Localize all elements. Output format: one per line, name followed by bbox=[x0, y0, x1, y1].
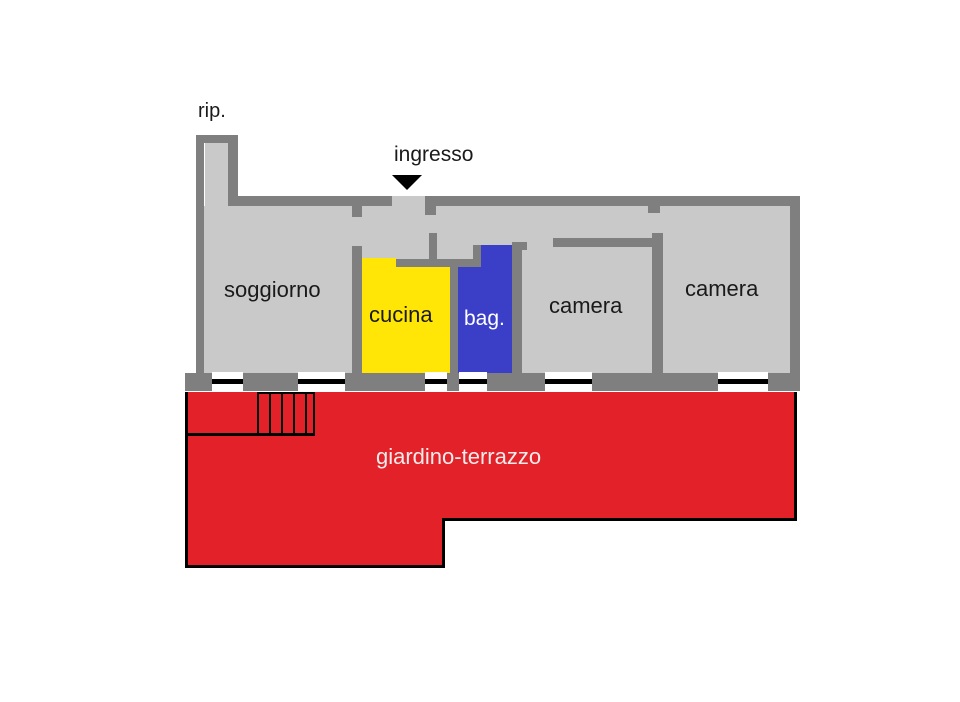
stairs-step-line bbox=[293, 392, 295, 435]
garden-label: giardino-terrazzo bbox=[376, 444, 541, 469]
kitchen-label: cucina bbox=[369, 302, 433, 327]
bedroom2-label: camera bbox=[685, 276, 758, 301]
garden-border-bottom-right bbox=[442, 518, 797, 521]
window-bedroom1 bbox=[545, 372, 592, 392]
wall-bedroom2-nub bbox=[648, 206, 660, 213]
wall-entry-stub bbox=[425, 206, 436, 215]
wall-top-right-segment bbox=[425, 196, 800, 206]
window-pane bbox=[459, 379, 487, 384]
wall-bedroom-divider bbox=[652, 233, 663, 373]
stairs-step-line bbox=[257, 392, 259, 435]
garden-border-step bbox=[442, 518, 445, 568]
storage-floor bbox=[205, 142, 228, 206]
wall-bottom bbox=[185, 373, 800, 391]
bath-label: bag. bbox=[464, 307, 505, 331]
entrance-arrow-icon bbox=[392, 175, 422, 190]
floor-plan: rip. ingresso soggiorno cucina bag. came… bbox=[0, 0, 960, 702]
wall-bath-right bbox=[512, 242, 522, 373]
stairs-step-line bbox=[305, 392, 307, 435]
wall-kitchen-top bbox=[396, 259, 481, 267]
window-pane bbox=[718, 379, 768, 384]
garden-terrace-lower bbox=[185, 521, 445, 568]
wall-living-kitchen bbox=[352, 246, 362, 373]
kitchen-door-fill bbox=[362, 258, 396, 267]
wall-left bbox=[196, 135, 204, 373]
storage-label: rip. bbox=[198, 100, 226, 123]
entrance-label: ingresso bbox=[394, 143, 473, 167]
window-living-1 bbox=[212, 372, 243, 392]
window-pane bbox=[212, 379, 243, 384]
living-label: soggiorno bbox=[224, 277, 321, 302]
window-pane bbox=[425, 379, 447, 384]
garden-border-right bbox=[794, 392, 797, 521]
wall-living-stub bbox=[352, 206, 362, 217]
stairs-step-line bbox=[313, 392, 315, 435]
window-bath bbox=[459, 372, 487, 392]
window-living-2 bbox=[298, 372, 345, 392]
window-bedroom2 bbox=[718, 372, 768, 392]
stairs-step-line bbox=[281, 392, 283, 435]
garden-border-bottom-left bbox=[185, 565, 445, 568]
bedroom1-label: camera bbox=[549, 293, 622, 318]
window-kitchen bbox=[425, 372, 447, 392]
wall-hall-stub bbox=[429, 233, 437, 259]
wall-bedroom1-top bbox=[553, 238, 655, 247]
window-pane bbox=[545, 379, 592, 384]
wall-bath-jamb bbox=[473, 245, 481, 259]
garden-border-left bbox=[185, 392, 188, 568]
window-pane bbox=[298, 379, 345, 384]
stairs-base-line bbox=[186, 433, 315, 436]
entrance-opening bbox=[392, 196, 425, 206]
wall-top-left-segment bbox=[228, 196, 392, 206]
wall-right bbox=[790, 196, 800, 391]
wall-kitchen-bath bbox=[450, 259, 458, 373]
stairs-step-line bbox=[269, 392, 271, 435]
